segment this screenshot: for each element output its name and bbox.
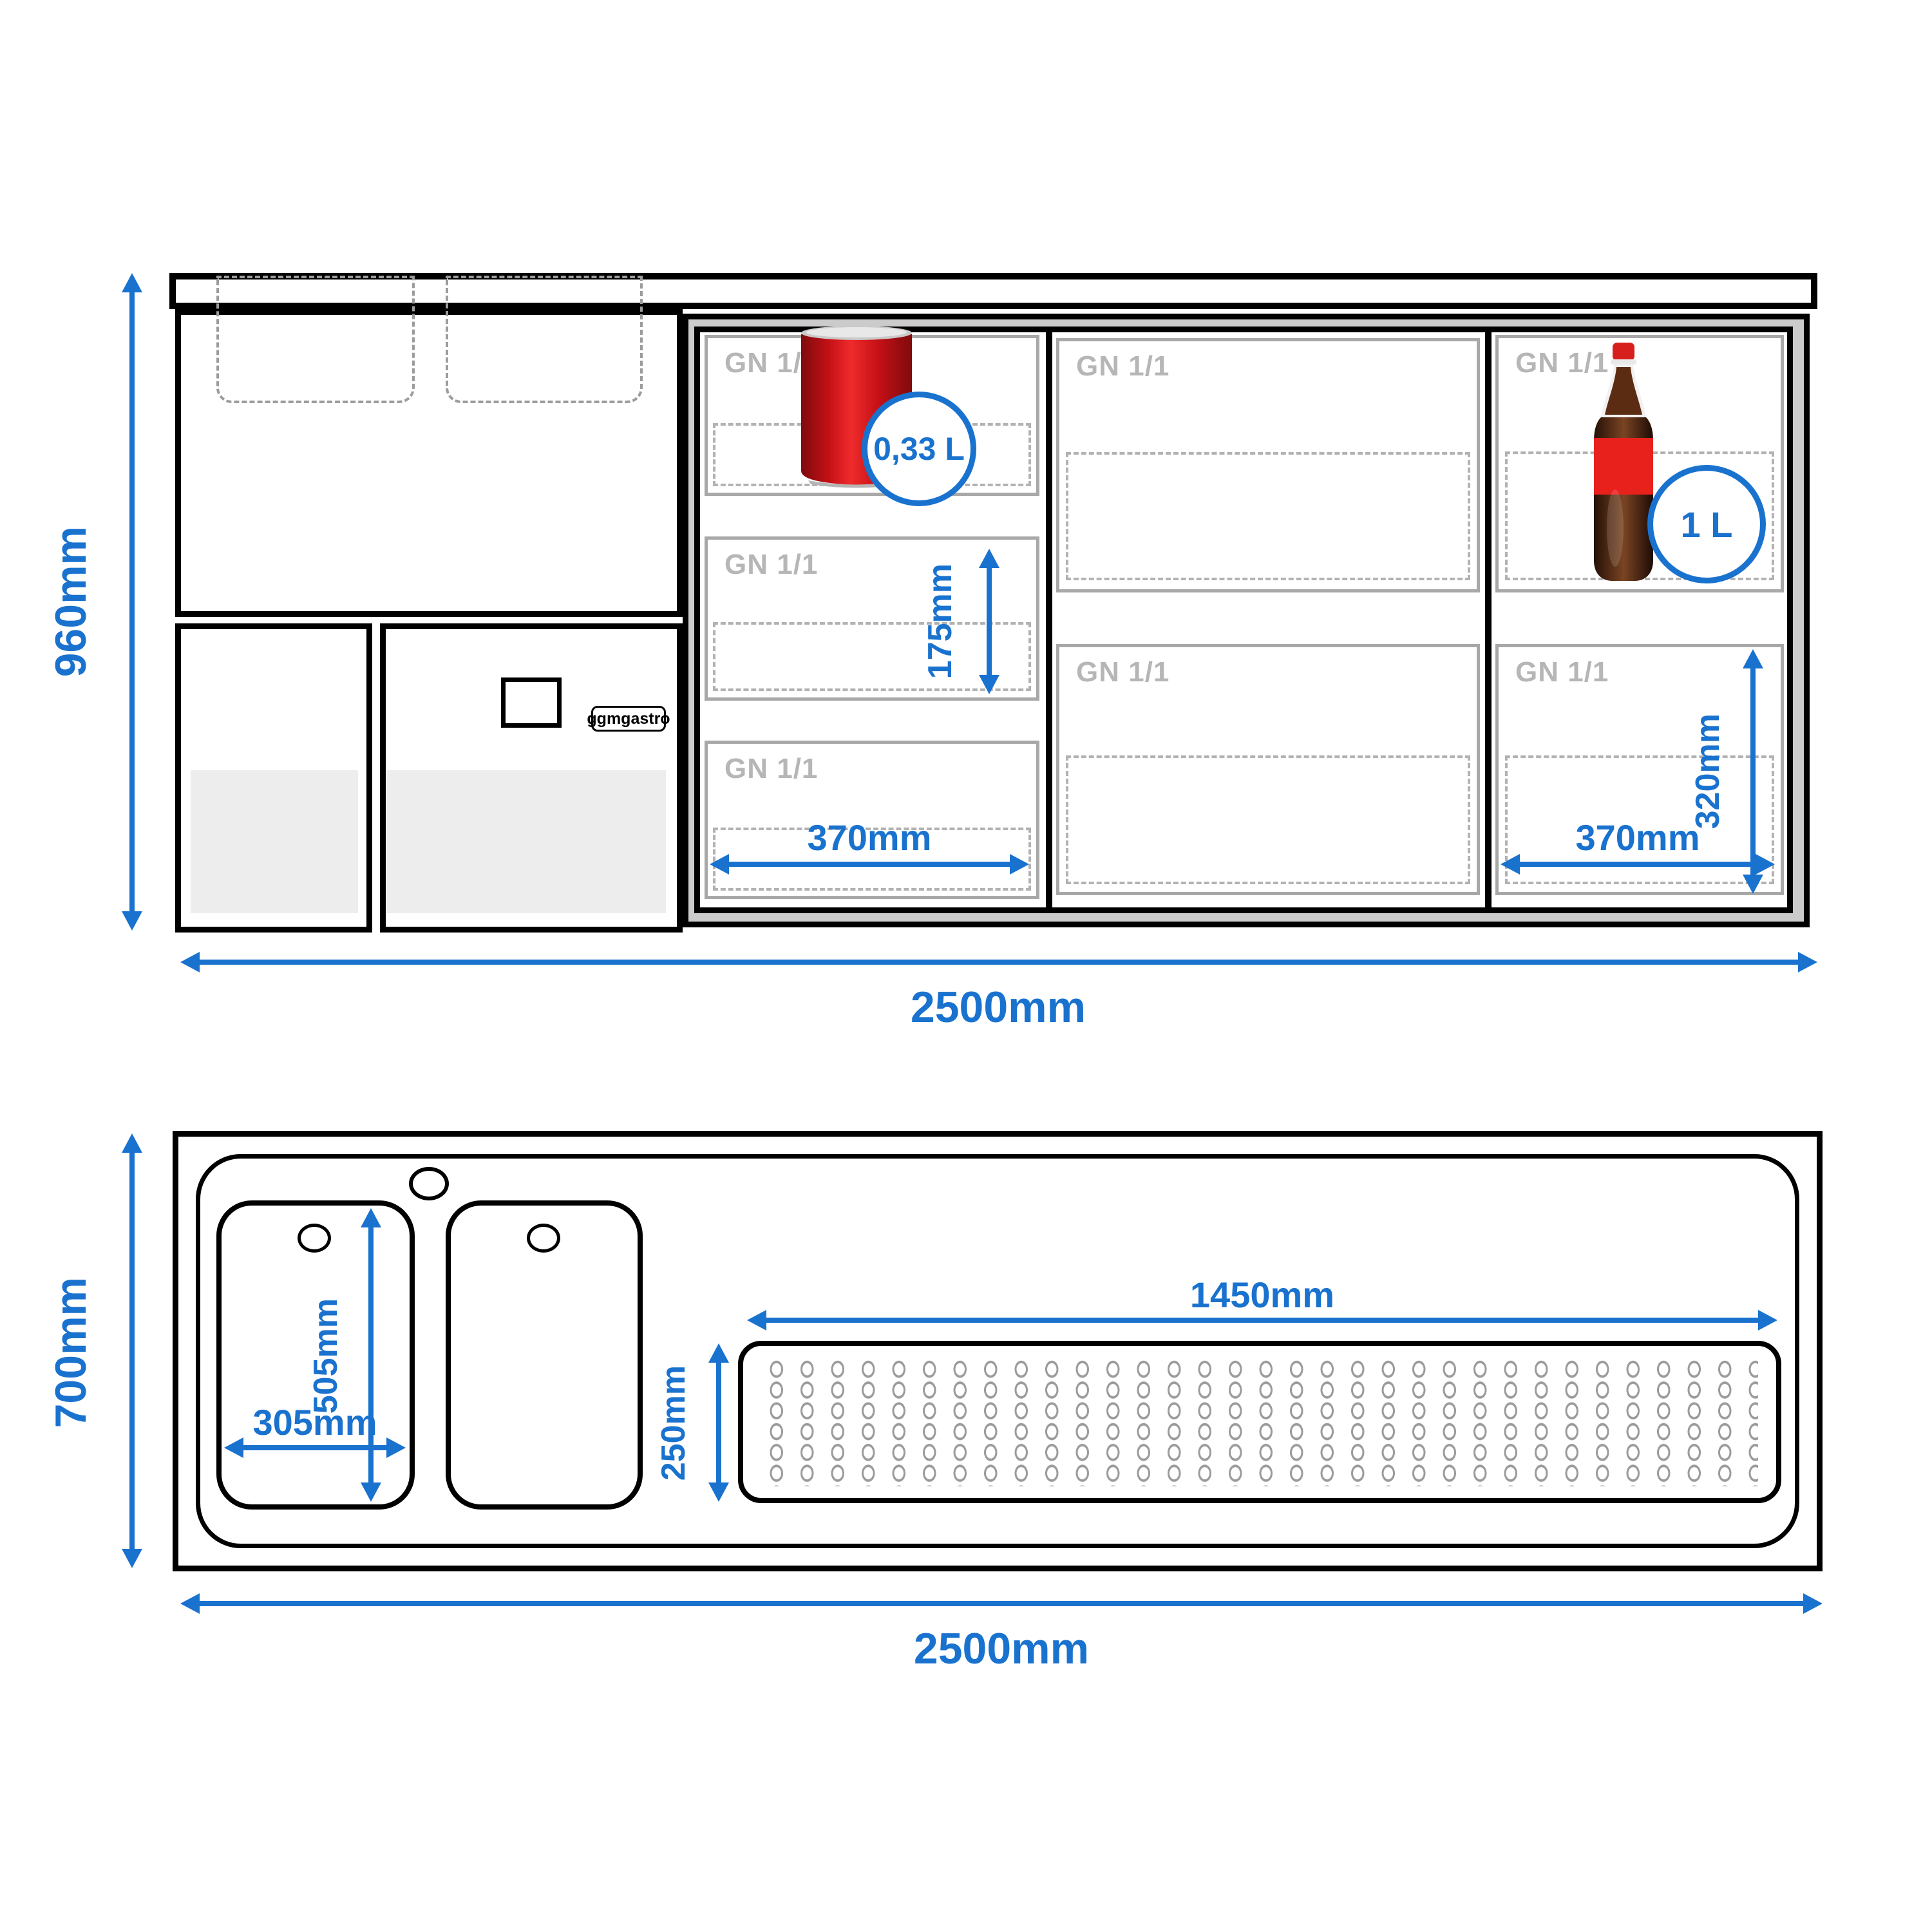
dim-arrow-drainer-length bbox=[766, 1318, 1758, 1323]
gn-compartment: GN 1/1 bbox=[1056, 338, 1480, 592]
column-divider bbox=[1485, 332, 1492, 908]
front-elevation-view: ggmgastro GN 1/1 GN 1/1 GN 1/1 GN 1/1 GN… bbox=[0, 0, 1932, 1095]
dim-label-overall-depth: 700mm bbox=[32, 1172, 109, 1533]
gn-compartment: GN 1/1 bbox=[1056, 644, 1480, 895]
dim-arrow-sink-length bbox=[368, 1227, 374, 1482]
brand-logo-badge: ggmgastro bbox=[591, 706, 666, 732]
dim-arrow-overall-depth bbox=[129, 1153, 135, 1549]
dim-arrow-pan-width-right bbox=[1520, 862, 1756, 867]
brand-logo-text: ggmgastro bbox=[587, 710, 670, 728]
dim-label-overall-width-top: 2500mm bbox=[179, 981, 1817, 1033]
gn-size-label: GN 1/1 bbox=[724, 549, 818, 581]
dim-label-overall-height: 960mm bbox=[32, 421, 109, 782]
sink-outline-left bbox=[216, 276, 415, 403]
dim-arrow-overall-width-top bbox=[200, 960, 1798, 965]
bottle-capacity-text: 1 L bbox=[1681, 504, 1733, 545]
door-panel bbox=[191, 770, 358, 913]
can-capacity-badge: 0,33 L bbox=[862, 392, 976, 506]
door-panel bbox=[386, 770, 666, 913]
sink-outline-right bbox=[446, 276, 643, 403]
cabinet-door-left bbox=[175, 623, 372, 933]
dim-label-overall-width-bottom: 2500mm bbox=[180, 1623, 1823, 1674]
dim-arrow-overall-width-bottom bbox=[200, 1601, 1803, 1606]
gn-pan-outline bbox=[1066, 755, 1470, 884]
cola-bottle-illustration bbox=[1589, 341, 1658, 583]
dim-arrow-pan-width-left bbox=[729, 862, 1010, 867]
dim-arrow-drainer-width bbox=[716, 1363, 721, 1482]
bar-counter-technical-drawing: ggmgastro GN 1/1 GN 1/1 GN 1/1 GN 1/1 GN… bbox=[0, 0, 1932, 1932]
dim-label-pan-width-left: 370mm bbox=[710, 817, 1029, 858]
drainer-perforation-grid bbox=[761, 1359, 1758, 1486]
dim-arrow-compartment-height bbox=[1750, 668, 1756, 875]
gn-size-label: GN 1/1 bbox=[724, 753, 818, 785]
dim-label-compartment-height: 320mm bbox=[1669, 681, 1747, 862]
dim-label-drainer-length: 1450mm bbox=[766, 1274, 1758, 1315]
countertop bbox=[169, 273, 1817, 309]
dim-arrow-shelf-height bbox=[987, 568, 992, 675]
gn-size-label: GN 1/1 bbox=[1515, 656, 1609, 688]
cabinet-door-right: ggmgastro bbox=[380, 623, 683, 933]
dim-label-sink-width: 305mm bbox=[218, 1401, 412, 1443]
dim-arrow-overall-height bbox=[129, 292, 135, 911]
control-panel-cutout bbox=[501, 677, 562, 728]
bottle-capacity-badge: 1 L bbox=[1647, 465, 1766, 583]
tap-hole bbox=[409, 1167, 449, 1200]
dim-label-drainer-width: 250mm bbox=[635, 1352, 712, 1494]
gn-size-label: GN 1/1 bbox=[1076, 350, 1170, 383]
dim-label-shelf-height: 175mm bbox=[902, 555, 979, 688]
column-divider bbox=[1046, 332, 1052, 908]
gn-size-label: GN 1/1 bbox=[1076, 656, 1170, 688]
can-capacity-text: 0,33 L bbox=[873, 430, 965, 468]
dim-arrow-sink-width bbox=[243, 1445, 386, 1450]
gn-pan-outline bbox=[1066, 452, 1470, 580]
drain-hole-left bbox=[298, 1224, 331, 1253]
drainer-area bbox=[738, 1341, 1781, 1503]
drain-hole-right bbox=[527, 1224, 560, 1253]
worktop-plan-view: 700mm 505mm 305mm 1450mm 250mm 2500mm bbox=[0, 1095, 1932, 1932]
